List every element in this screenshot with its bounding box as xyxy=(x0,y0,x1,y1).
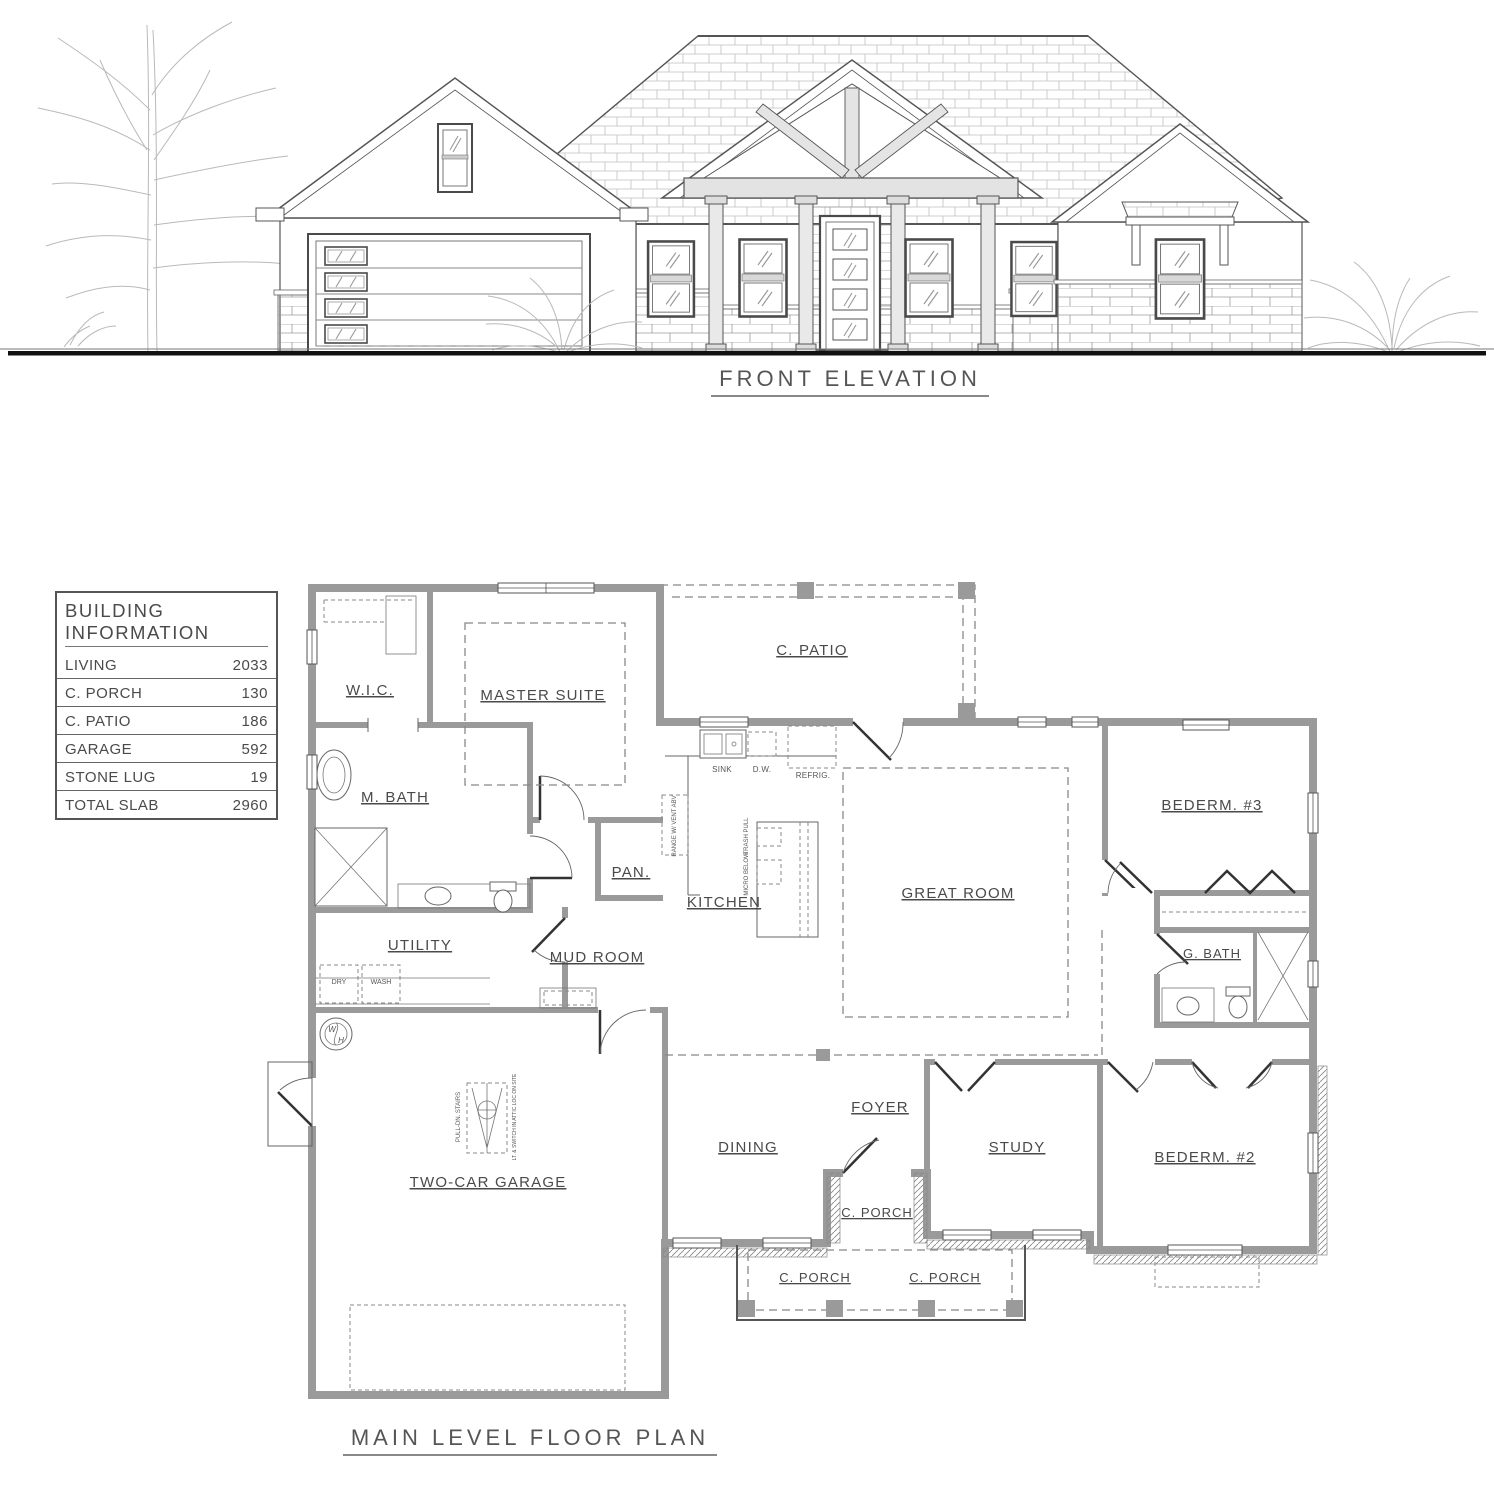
building-info-table: BUILDING INFORMATION LIVING 2033 C. PORC… xyxy=(55,591,278,820)
shrub-sketch xyxy=(64,312,116,347)
window xyxy=(1011,242,1056,316)
room-label-bedroom3: BEDERM. #3 xyxy=(1161,797,1262,814)
room-label-wic: W.I.C. xyxy=(346,682,394,699)
room-label-mud-room: MUD ROOM xyxy=(550,949,645,966)
room-label-garage: TWO-CAR GARAGE xyxy=(410,1174,567,1191)
room-label-g-bath: G. BATH xyxy=(1183,946,1241,961)
annotation-attic-note: LT. & SWITCH IN ATTIC LOC ON SITE xyxy=(512,1073,518,1160)
drawing-sheet: FRONT ELEVATION BUILDING INFORMATION LIV… xyxy=(0,0,1494,1492)
elevation-title: FRONT ELEVATION xyxy=(640,366,1060,397)
building-info-row: TOTAL SLAB 2960 xyxy=(57,791,276,818)
room-label-c-patio: C. PATIO xyxy=(776,642,848,659)
building-info-row: STONE LUG 19 xyxy=(57,763,276,791)
room-label-bedroom2: BEDERM. #2 xyxy=(1154,1149,1255,1166)
room-label-study: STUDY xyxy=(989,1139,1046,1156)
room-label-m-bath: M. BATH xyxy=(361,789,429,806)
annotation-micro-below: MICRO BELOW xyxy=(744,852,750,896)
annotation-sink: SINK xyxy=(712,765,732,774)
room-labels: C. PATIO W.I.C. MASTER SUITE M. BATH PAN… xyxy=(346,642,1263,1285)
tree-sketch xyxy=(38,22,292,352)
annotation-range: RANGE W/ VENT ABV xyxy=(672,795,678,856)
building-info-row: C. PATIO 186 xyxy=(57,707,276,735)
garage-wing xyxy=(256,78,648,352)
building-info-row: GARAGE 592 xyxy=(57,735,276,763)
room-label-great-room: GREAT ROOM xyxy=(901,885,1014,902)
window xyxy=(740,240,787,317)
room-label-porch-left: C. PORCH xyxy=(779,1270,851,1285)
attic-window xyxy=(438,124,472,192)
annotation-water-heater-h: H xyxy=(338,1036,344,1045)
floor-plan-title-text: MAIN LEVEL FLOOR PLAN xyxy=(343,1425,717,1456)
building-info-title: BUILDING INFORMATION xyxy=(57,593,276,651)
front-elevation-drawing xyxy=(0,0,1494,400)
room-label-utility: UTILITY xyxy=(388,937,452,954)
annotation-trash-pull: TRASH PULL xyxy=(744,817,750,855)
annotation-wash: WASH xyxy=(371,979,392,986)
building-info-row: LIVING 2033 xyxy=(57,651,276,679)
elevation-title-text: FRONT ELEVATION xyxy=(711,366,989,397)
annotation-dry: DRY xyxy=(332,979,347,986)
annotation-dw: D.W. xyxy=(753,765,772,774)
building-info-row: C. PORCH 130 xyxy=(57,679,276,707)
front-door-elevation xyxy=(820,216,880,350)
room-label-pantry: PAN. xyxy=(612,864,651,881)
window xyxy=(1156,240,1204,319)
room-label-porch-entry: C. PORCH xyxy=(841,1205,913,1220)
room-label-master-suite: MASTER SUITE xyxy=(480,687,605,704)
floor-plan-title: MAIN LEVEL FLOOR PLAN xyxy=(320,1425,740,1456)
annotation-refrig: REFRIG. xyxy=(796,771,831,780)
room-label-porch-right: C. PORCH xyxy=(909,1270,981,1285)
window xyxy=(906,240,953,317)
annotation-pull-down-stairs: PULL-DN. STAIRS xyxy=(456,1092,462,1142)
window xyxy=(648,241,694,316)
room-label-foyer: FOYER xyxy=(851,1099,909,1116)
room-label-dining: DINING xyxy=(718,1139,778,1156)
garage-door xyxy=(308,234,590,352)
palm-sketch-right xyxy=(1304,262,1480,352)
